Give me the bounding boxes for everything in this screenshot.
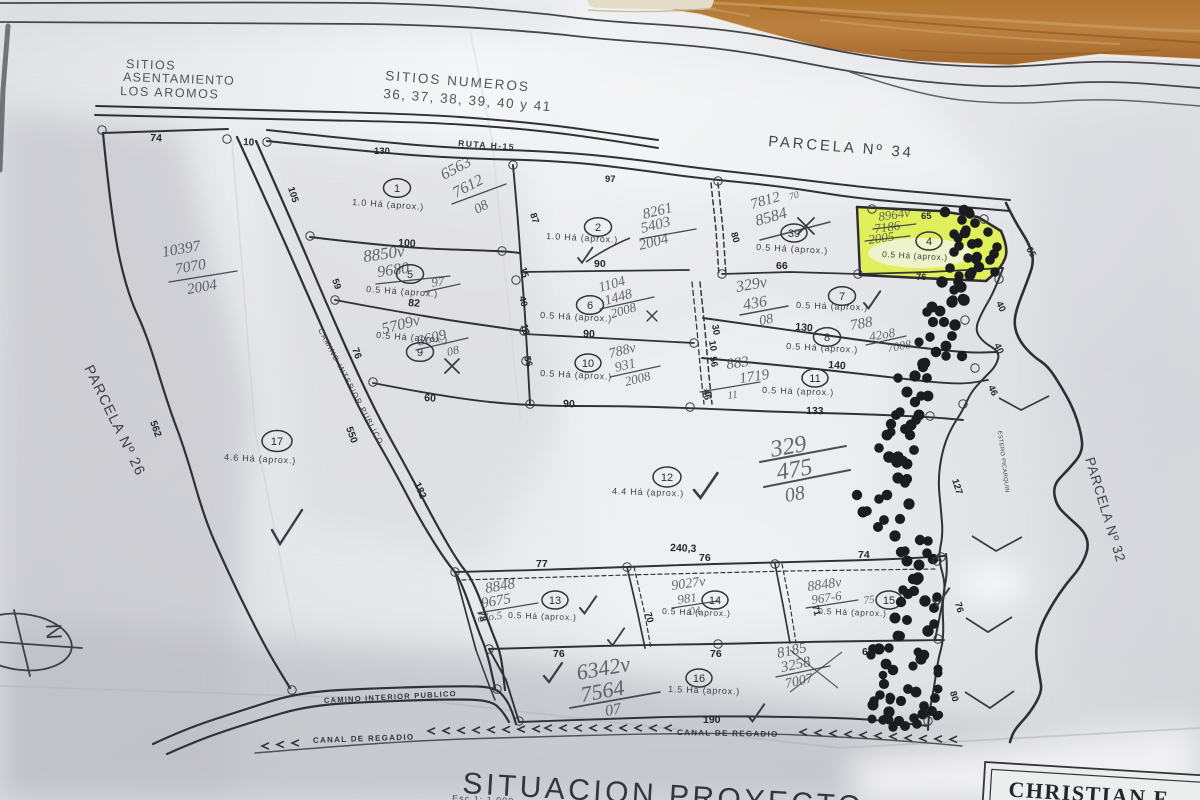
svg-text:76: 76 (699, 552, 711, 564)
svg-text:76: 76 (710, 648, 722, 660)
svg-text:10: 10 (706, 340, 719, 352)
svg-text:1: 1 (394, 183, 400, 195)
svg-text:65: 65 (921, 211, 932, 222)
svg-text:190: 190 (703, 714, 721, 726)
svg-text:4: 4 (926, 236, 932, 248)
svg-text:08: 08 (758, 312, 774, 329)
svg-text:2: 2 (595, 222, 601, 234)
svg-text:76: 76 (916, 272, 927, 283)
svg-text:10: 10 (582, 358, 594, 370)
svg-text:140: 140 (828, 359, 846, 372)
svg-text:N: N (41, 623, 67, 640)
svg-text:10: 10 (243, 137, 255, 149)
svg-text:04: 04 (689, 604, 702, 617)
svg-text:74: 74 (150, 132, 162, 145)
svg-text:75: 75 (863, 593, 876, 606)
svg-text:240,3: 240,3 (670, 542, 697, 555)
svg-text:6: 6 (587, 300, 593, 312)
svg-text:30: 30 (709, 324, 722, 336)
svg-text:13: 13 (549, 595, 561, 607)
svg-text:66: 66 (776, 260, 788, 272)
svg-text:11: 11 (727, 389, 739, 402)
svg-text:77: 77 (536, 558, 548, 570)
svg-text:17: 17 (271, 436, 283, 448)
svg-text:74: 74 (858, 549, 870, 561)
svg-text:97: 97 (605, 174, 616, 185)
svg-text:90: 90 (563, 398, 575, 410)
svg-text:15: 15 (883, 595, 895, 607)
svg-text:133: 133 (806, 405, 824, 417)
svg-text:90: 90 (583, 328, 595, 340)
svg-text:08: 08 (783, 482, 807, 507)
svg-text:11: 11 (809, 373, 820, 385)
svg-text:CANAL DE REGADIO: CANAL DE REGADIO (677, 728, 779, 739)
svg-text:60: 60 (424, 392, 437, 405)
svg-text:76: 76 (553, 648, 565, 660)
svg-text:130: 130 (374, 146, 390, 157)
svg-text:82: 82 (408, 297, 421, 310)
svg-text:130: 130 (795, 321, 814, 334)
svg-text:16: 16 (693, 673, 705, 685)
svg-text:90: 90 (594, 258, 606, 270)
svg-text:56: 56 (707, 356, 720, 368)
svg-text:12: 12 (661, 472, 673, 484)
svg-text:✳: ✳ (702, 387, 711, 399)
